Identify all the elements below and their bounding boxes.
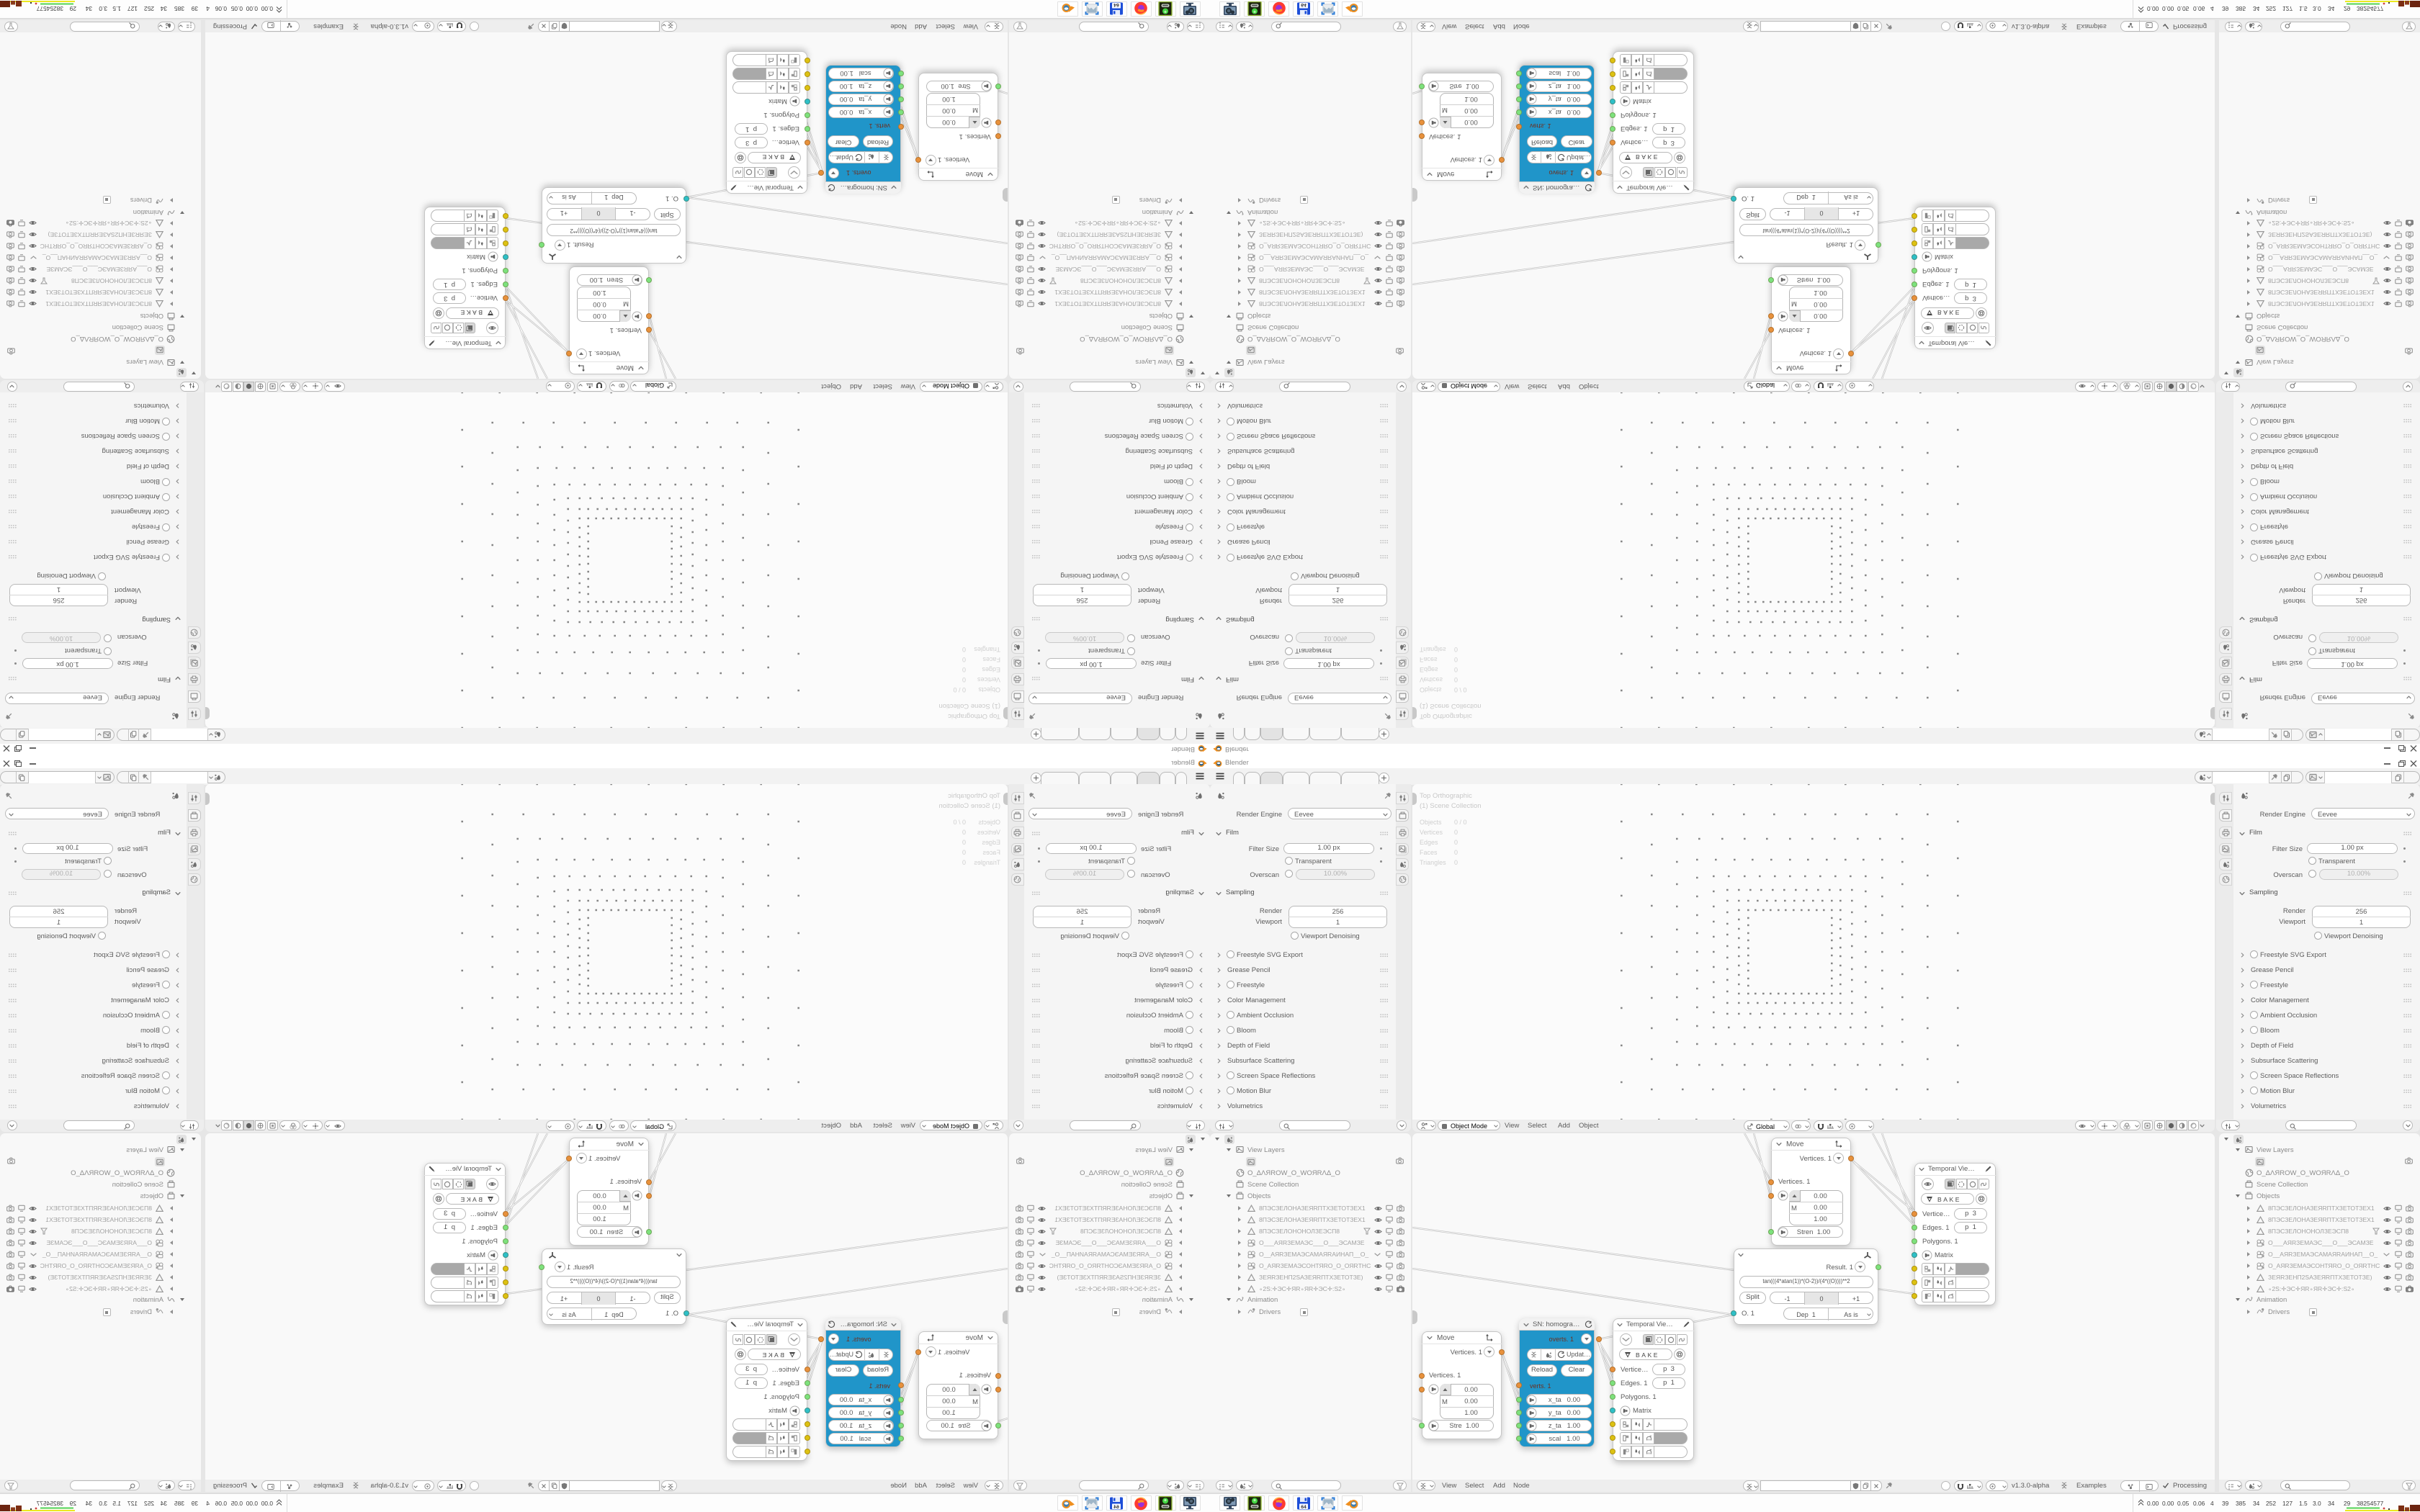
svg-text:64: 64 bbox=[1114, 3, 1120, 8]
svg-text:64: 64 bbox=[1301, 3, 1307, 8]
svg-text:64: 64 bbox=[1301, 1504, 1307, 1509]
svg-text:64: 64 bbox=[1114, 1504, 1120, 1509]
